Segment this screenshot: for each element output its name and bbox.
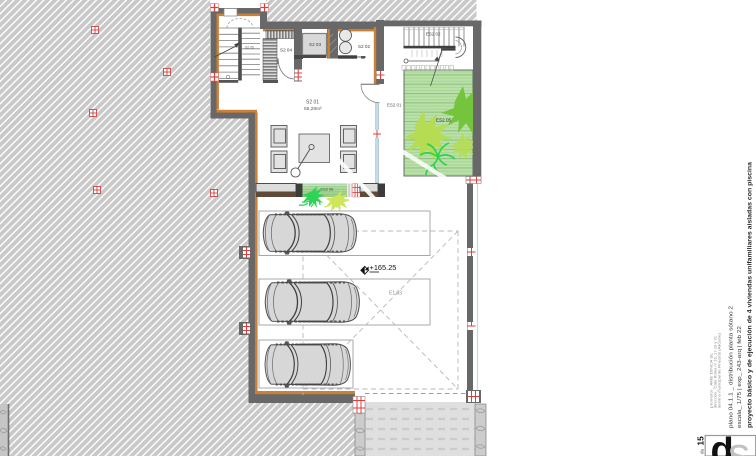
svg-text:E1 03: E1 03: [389, 291, 402, 297]
svg-text:S2 05: S2 05: [245, 46, 254, 50]
svg-text:S2 02: S2 02: [358, 44, 370, 49]
svg-text:55,28m²: 55,28m²: [304, 106, 322, 112]
svg-text:ES2 05: ES2 05: [436, 118, 452, 123]
svg-text:S2 03: S2 03: [309, 42, 321, 47]
svg-text:S2 01: S2 01: [306, 100, 319, 106]
svg-text:ES2 01: ES2 01: [387, 103, 402, 108]
svg-text:ES2 02: ES2 02: [426, 32, 441, 37]
svg-text:S2 04: S2 04: [280, 48, 292, 53]
svg-text:escala_ 1/75 | exp_ 243-arq: escala_ 1/75 | exp_ 243-arq | feb 22: [737, 326, 743, 428]
svg-text:término municipal de Finestrat: término municipal de Finestrat (Alicante…: [718, 333, 722, 408]
svg-text:proyecto básico y de ejecución: proyecto básico y de ejecución de 4 vivi…: [747, 162, 754, 428]
svg-text:ES2 06: ES2 06: [321, 187, 334, 192]
svg-text:+165.25: +165.25: [370, 263, 397, 272]
svg-text:plano 04.1.1 _ distribución pl: plano 04.1.1 _ distribución planta sótan…: [729, 306, 735, 428]
